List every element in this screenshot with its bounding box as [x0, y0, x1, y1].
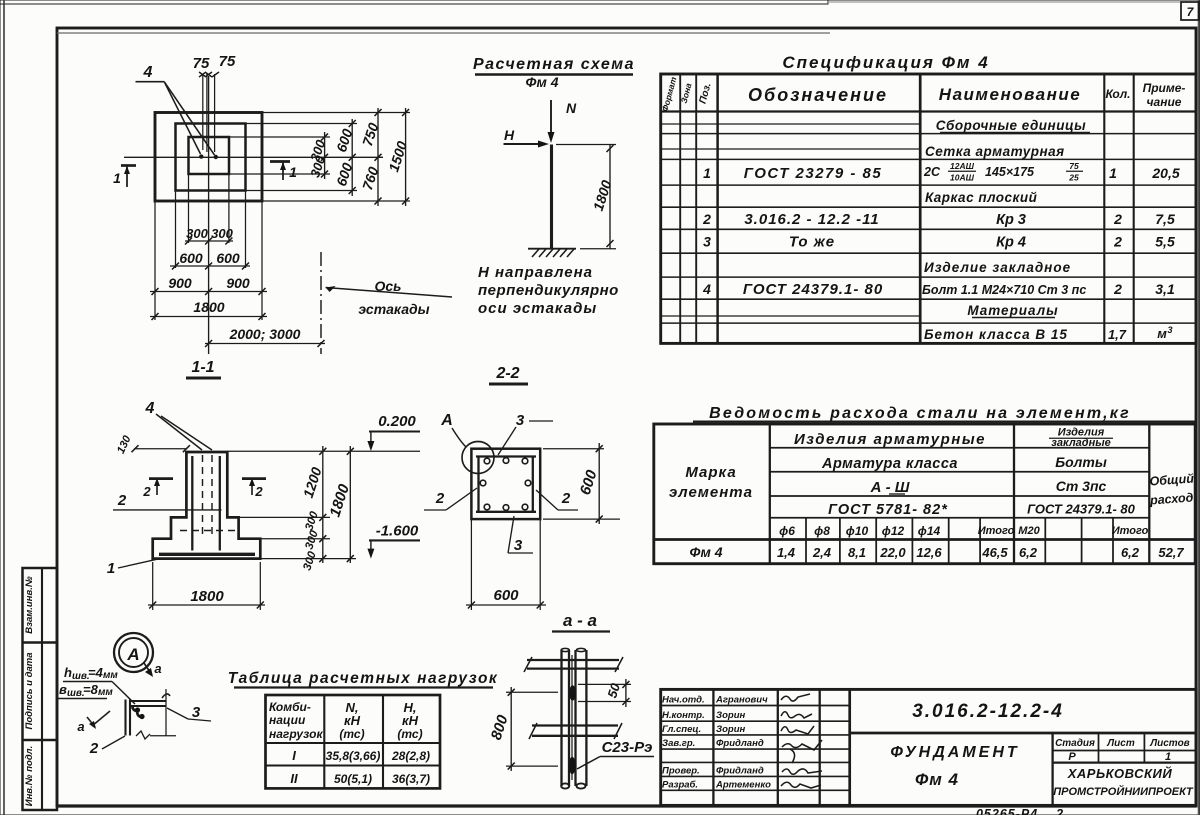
svg-text:900: 900	[168, 275, 192, 291]
svg-text:3: 3	[516, 412, 525, 429]
svg-text:A: A	[126, 645, 139, 664]
svg-text:Зорин: Зорин	[716, 710, 746, 721]
svg-text:145×175: 145×175	[985, 165, 1035, 179]
svg-text:2С: 2С	[923, 165, 941, 179]
svg-text:Болты: Болты	[1055, 454, 1107, 470]
svg-text:Наименование: Наименование	[939, 85, 1081, 104]
svg-text:3: 3	[192, 704, 201, 721]
svg-text:Каркас плоский: Каркас плоский	[925, 190, 1038, 205]
svg-text:300: 300	[301, 550, 319, 573]
svg-text:75: 75	[219, 53, 236, 70]
svg-text:4: 4	[145, 400, 155, 417]
svg-text:3.016.2 - 12.2 -11: 3.016.2 - 12.2 -11	[744, 211, 879, 228]
svg-text:ϕ6: ϕ6	[779, 524, 795, 538]
svg-text:элемента: элемента	[669, 484, 753, 501]
svg-text:600: 600	[216, 250, 240, 266]
svg-text:Зав.гр.: Зав.гр.	[662, 738, 695, 749]
svg-text:Изделие закладное: Изделие закладное	[924, 260, 1071, 275]
svg-text:2: 2	[254, 484, 263, 499]
svg-text:Стадия: Стадия	[1055, 738, 1095, 749]
svg-text:Изделия арматурные: Изделия арматурные	[794, 431, 986, 448]
svg-text:a - a: a - a	[563, 611, 597, 630]
svg-text:3.016.2-12.2-4: 3.016.2-12.2-4	[912, 701, 1064, 722]
svg-text:25: 25	[1068, 173, 1079, 183]
svg-text:Итого: Итого	[978, 525, 1015, 537]
svg-text:1: 1	[1165, 751, 1171, 763]
svg-text:нации: нации	[269, 713, 306, 727]
svg-text:46,5: 46,5	[981, 545, 1008, 560]
svg-text:20,5: 20,5	[1151, 165, 1179, 181]
svg-text:ϕ10: ϕ10	[846, 524, 869, 538]
svg-text:кН: кН	[402, 713, 419, 728]
svg-text:ПРОМСТРОЙНИИПРОЕКТ: ПРОМСТРОЙНИИПРОЕКТ	[1053, 785, 1194, 798]
svg-text:Р: Р	[1068, 751, 1076, 763]
svg-text:1800: 1800	[326, 481, 353, 519]
svg-text:Кол.: Кол.	[1105, 87, 1130, 101]
svg-text:Кр 4: Кр 4	[996, 235, 1026, 251]
svg-text:h: h	[64, 665, 72, 680]
svg-text:3: 3	[514, 537, 523, 554]
svg-text:800: 800	[488, 712, 512, 742]
svg-text:С23-Рэ: С23-Рэ	[602, 739, 653, 756]
svg-text:2: 2	[435, 490, 445, 507]
svg-text:52,7: 52,7	[1158, 545, 1184, 560]
svg-text:II: II	[290, 771, 298, 786]
svg-text:То же: То же	[789, 234, 835, 251]
svg-text:Итого: Итого	[1112, 525, 1149, 537]
svg-text:6,2: 6,2	[1019, 545, 1038, 560]
svg-text:Разраб.: Разраб.	[662, 780, 698, 791]
svg-text:28(2,8): 28(2,8)	[391, 749, 430, 763]
svg-text:1500: 1500	[385, 139, 410, 174]
svg-text:мм: мм	[103, 670, 118, 681]
svg-text:1-1: 1-1	[191, 359, 214, 376]
svg-text:Комби-: Комби-	[269, 700, 311, 714]
svg-text:ХАРЬКОВСКИЙ: ХАРЬКОВСКИЙ	[1067, 765, 1173, 781]
svg-text:Фридланд: Фридланд	[716, 766, 764, 777]
svg-text:36(3,7): 36(3,7)	[392, 772, 430, 786]
svg-text:75: 75	[1069, 161, 1079, 171]
svg-text:N: N	[566, 100, 577, 116]
svg-text:3: 3	[703, 234, 711, 250]
svg-text:Таблица расчетных нагрузок: Таблица расчетных нагрузок	[228, 670, 499, 687]
svg-text:300: 300	[303, 529, 321, 552]
svg-text:Приме-: Приме-	[1143, 81, 1186, 95]
svg-text:600: 600	[179, 250, 203, 266]
svg-text:Гл.спец.: Гл.спец.	[662, 724, 701, 735]
svg-text:Зорин: Зорин	[716, 724, 746, 735]
svg-text:нагрузок: нагрузок	[269, 727, 323, 741]
svg-text:75: 75	[193, 55, 210, 72]
svg-text:Общий: Общий	[1149, 471, 1195, 488]
svg-text:кН: кН	[344, 713, 361, 728]
svg-text:H: H	[504, 127, 515, 143]
svg-text:4: 4	[143, 64, 153, 81]
svg-text:900: 900	[226, 275, 250, 291]
svg-text:Расчетная схема: Расчетная схема	[473, 56, 635, 73]
svg-text:Формат: Формат	[660, 75, 679, 112]
svg-text:1,4: 1,4	[777, 545, 796, 560]
svg-text:эстакады: эстакады	[358, 301, 429, 317]
svg-text:Обозначение: Обозначение	[748, 85, 888, 105]
svg-text:1: 1	[289, 164, 297, 180]
svg-text:I: I	[292, 748, 296, 763]
svg-text:Арматура класса: Арматура класса	[821, 456, 958, 472]
svg-text:8,1: 8,1	[848, 545, 866, 560]
svg-text:чание: чание	[1147, 95, 1182, 109]
svg-text:Нач.отд.: Нач.отд.	[662, 695, 705, 706]
svg-text:ϕ8: ϕ8	[814, 524, 830, 538]
svg-text:1800: 1800	[190, 588, 224, 605]
svg-text:2: 2	[1113, 281, 1122, 297]
svg-text:6,2: 6,2	[1121, 545, 1140, 560]
svg-text:(тс): (тс)	[339, 727, 364, 741]
svg-text:мм: мм	[98, 687, 113, 698]
svg-text:м: м	[1157, 326, 1167, 341]
svg-text:7: 7	[1187, 5, 1195, 19]
svg-text:Лист: Лист	[1106, 738, 1135, 749]
svg-text:5,5: 5,5	[1155, 234, 1175, 250]
svg-text:2: 2	[702, 211, 711, 227]
svg-text:2000; 3000: 2000; 3000	[229, 326, 301, 342]
svg-text:12,6: 12,6	[916, 545, 942, 560]
svg-text:Подпись и дата: Подпись и дата	[24, 652, 35, 729]
svg-text:2-2: 2-2	[495, 365, 519, 382]
svg-text:М20: М20	[1018, 525, 1040, 537]
svg-text:1,7: 1,7	[1108, 327, 1127, 342]
svg-text:2: 2	[142, 484, 151, 499]
svg-text:1: 1	[107, 560, 115, 577]
svg-text:Взам.инв.№: Взам.инв.№	[24, 576, 35, 634]
svg-text:3,1: 3,1	[1155, 281, 1175, 297]
svg-text:a: a	[154, 661, 161, 676]
svg-text:Фм 4: Фм 4	[526, 74, 559, 90]
svg-text:Сетка арматурная: Сетка арматурная	[925, 144, 1065, 159]
svg-text:50: 50	[604, 681, 623, 700]
svg-text:Ст 3пс: Ст 3пс	[1056, 478, 1107, 494]
svg-text:ГОСТ 23279 - 85: ГОСТ 23279 - 85	[744, 165, 883, 182]
svg-text:ГОСТ 24379.1- 80: ГОСТ 24379.1- 80	[1027, 502, 1136, 517]
svg-text:3: 3	[1167, 325, 1172, 335]
svg-text:1: 1	[1109, 165, 1117, 181]
svg-text:Бетон класса В 15: Бетон класса В 15	[924, 327, 1068, 342]
svg-text:Агранович: Агранович	[715, 695, 768, 706]
svg-text:в: в	[59, 682, 67, 697]
svg-text:Провер.: Провер.	[662, 766, 700, 777]
svg-text:1: 1	[113, 170, 121, 186]
svg-text:Фридланд: Фридланд	[716, 738, 764, 749]
svg-text:600: 600	[493, 587, 519, 604]
svg-text:ГОСТ 24379.1- 80: ГОСТ 24379.1- 80	[743, 281, 883, 298]
svg-text:Листов: Листов	[1149, 738, 1189, 749]
svg-text:Кр 3: Кр 3	[996, 212, 1026, 228]
svg-text:расход: расход	[1149, 490, 1195, 507]
svg-text:2: 2	[1113, 211, 1122, 227]
svg-text:1200: 1200	[300, 465, 325, 500]
svg-text:Материалы: Материалы	[967, 303, 1058, 318]
svg-text:05265-Р4 2: 05265-Р4 2	[976, 807, 1064, 815]
svg-text:12АШ: 12АШ	[950, 161, 975, 171]
svg-text:Фм 4: Фм 4	[690, 544, 723, 560]
svg-text:0.200: 0.200	[378, 413, 416, 430]
svg-text:22,0: 22,0	[879, 545, 906, 560]
svg-text:Н.контр.: Н.контр.	[662, 710, 705, 721]
svg-text:1800: 1800	[590, 178, 615, 213]
svg-text:оси эстакады: оси эстакады	[478, 300, 597, 317]
svg-text:ϕ12: ϕ12	[882, 524, 905, 538]
svg-text:2,4: 2,4	[812, 545, 832, 560]
svg-text:300: 300	[303, 510, 321, 533]
svg-text:ϕ14: ϕ14	[918, 524, 941, 538]
svg-text:a: a	[77, 719, 84, 734]
svg-text:300: 300	[211, 226, 233, 241]
svg-text:Спецификация Фм 4: Спецификация Фм 4	[782, 53, 989, 72]
svg-text:7,5: 7,5	[1155, 211, 1175, 227]
svg-text:перпендикулярно: перпендикулярно	[478, 282, 619, 299]
svg-text:(тс): (тс)	[397, 727, 422, 741]
svg-text:2: 2	[1113, 234, 1122, 250]
svg-text:Ось: Ось	[375, 278, 402, 294]
svg-text:2: 2	[117, 492, 127, 509]
svg-text:A: A	[440, 412, 453, 429]
svg-text:=8: =8	[83, 682, 99, 697]
svg-text:Инв.№ подл.: Инв.№ подл.	[24, 746, 35, 807]
svg-text:130: 130	[115, 433, 134, 456]
svg-text:35,8(3,66): 35,8(3,66)	[326, 749, 381, 763]
svg-text:ФУНДАМЕНТ: ФУНДАМЕНТ	[890, 744, 1019, 761]
svg-text:Поз.: Поз.	[698, 82, 714, 105]
svg-text:1800: 1800	[193, 299, 224, 315]
svg-text:4: 4	[702, 281, 711, 297]
svg-text:10АШ: 10АШ	[950, 173, 975, 183]
svg-text:Артеменко: Артеменко	[715, 780, 771, 791]
svg-text:Болт 1.1 М24×710 Ст 3 пс: Болт 1.1 М24×710 Ст 3 пс	[922, 283, 1086, 297]
svg-text:=4: =4	[88, 665, 104, 680]
svg-text:Н направлена: Н направлена	[478, 264, 593, 281]
svg-text:2: 2	[561, 490, 571, 507]
svg-text:600: 600	[577, 467, 601, 497]
svg-text:Фм 4: Фм 4	[915, 770, 959, 789]
svg-text:Марка: Марка	[685, 464, 736, 481]
svg-text:ГОСТ 5781- 82*: ГОСТ 5781- 82*	[828, 502, 948, 518]
svg-text:2: 2	[89, 740, 99, 757]
svg-text:50(5,1): 50(5,1)	[334, 772, 372, 786]
svg-text:-1.600: -1.600	[376, 523, 419, 540]
svg-text:1: 1	[703, 165, 711, 181]
svg-text:Сборочные единицы: Сборочные единицы	[936, 118, 1086, 133]
svg-text:Ведомость расхода стали на: Ведомость расхода стали на элемент,кг	[709, 405, 1131, 422]
svg-text:300: 300	[186, 226, 208, 241]
